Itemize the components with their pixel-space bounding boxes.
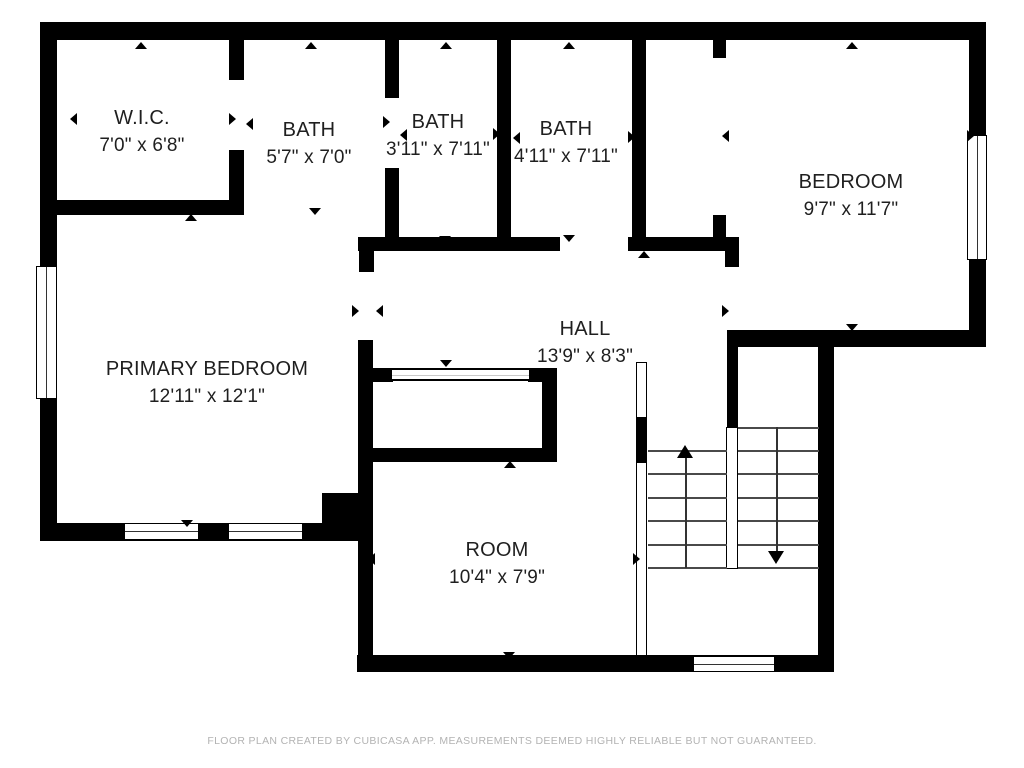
wall-wic-right-upper: [229, 22, 244, 80]
room-label-primary-bedroom: PRIMARY BEDROOM 12'11" x 12'1": [106, 356, 308, 410]
stairs-down-arrow: [776, 427, 778, 553]
wall-closet-top-left-stub: [359, 368, 393, 382]
room-dimensions: 4'11" x 7'11": [514, 143, 618, 170]
dim-marker-right: [722, 305, 729, 317]
dim-marker-right: [493, 128, 500, 140]
room-dimensions: 3'11" x 7'11": [386, 136, 490, 163]
wall-bedroom-left-upper: [713, 22, 726, 58]
stair-tread: [738, 544, 819, 546]
wall-hall-stairwell: [727, 340, 738, 428]
wall-bedroom-bottom: [727, 330, 986, 347]
room-label-bath1: BATH 5'7" x 7'0": [266, 117, 351, 171]
dim-marker-left: [47, 221, 54, 233]
room-label-wic: W.I.C. 7'0" x 6'8": [99, 105, 184, 159]
dim-marker-right: [352, 305, 359, 317]
stair-tread: [648, 544, 727, 546]
room-name: BATH: [386, 109, 490, 136]
room-name: BATH: [266, 117, 351, 144]
room-dimensions: 13'9" x 8'3": [537, 343, 633, 370]
room-name: ROOM: [449, 537, 545, 564]
dim-marker-up: [440, 42, 452, 49]
footer-disclaimer: FLOOR PLAN CREATED BY CUBICASA APP. MEAS…: [0, 735, 1024, 747]
dim-marker-left: [246, 118, 253, 130]
dim-marker-up: [638, 251, 650, 258]
dim-marker-down: [309, 208, 321, 215]
room-dimensions: 10'4" x 7'9": [449, 564, 545, 591]
wall-closet-bottom: [358, 448, 557, 462]
dim-marker-right: [628, 131, 635, 143]
stair-tread: [738, 427, 819, 429]
stair-tread: [738, 520, 819, 522]
room-name: BEDROOM: [799, 169, 904, 196]
dim-marker-right: [633, 553, 640, 565]
dim-marker-down: [439, 236, 451, 243]
wall-bath1-bath2-lower: [385, 168, 399, 238]
wall-exterior-top: [40, 22, 986, 40]
stair-tread: [738, 450, 819, 452]
stair-tread: [738, 567, 819, 569]
wall-hall-top-right-stub: [725, 237, 739, 267]
dim-marker-down: [135, 200, 147, 207]
dim-marker-down: [181, 520, 193, 527]
room-name: BATH: [514, 116, 618, 143]
dim-marker-up: [135, 42, 147, 49]
window-primary-bottom-2: [228, 523, 303, 540]
room-label-bath3: BATH 4'11" x 7'11": [514, 116, 618, 170]
dim-marker-left: [376, 305, 383, 317]
dim-marker-up: [185, 214, 197, 221]
room-label-bath2: BATH 3'11" x 7'11": [386, 109, 490, 163]
wall-bath1-bath2-upper: [385, 22, 399, 98]
stairs-down-arrow-head: [768, 551, 784, 564]
room-dimensions: 12'11" x 12'1": [106, 383, 308, 410]
room-dimensions: 7'0" x 6'8": [99, 132, 184, 159]
dim-marker-right: [967, 130, 974, 142]
dim-marker-right: [229, 113, 236, 125]
stairs-up-arrow: [685, 457, 687, 568]
window-bedroom-right: [967, 135, 987, 260]
room-dimensions: 5'7" x 7'0": [266, 144, 351, 171]
dim-marker-left: [722, 130, 729, 142]
floor-plan: W.I.C. 7'0" x 6'8" BATH 5'7" x 7'0" BATH…: [0, 0, 1024, 768]
wall-stair-west-segment: [636, 417, 647, 463]
dim-marker-left: [368, 553, 375, 565]
dim-marker-up: [846, 42, 858, 49]
dim-marker-up: [305, 42, 317, 49]
stair-tread: [648, 567, 727, 569]
stair-tread: [738, 473, 819, 475]
window-primary-left: [36, 266, 57, 399]
dim-marker-down: [563, 235, 575, 242]
dim-marker-up: [563, 42, 575, 49]
wall-hall-top-right: [628, 237, 739, 251]
wall-stairwell-right: [818, 347, 834, 672]
dim-marker-down: [503, 652, 515, 659]
closet-sliding-door: [392, 368, 529, 381]
door-hall-stairs: [636, 362, 647, 418]
window-stair-bottom: [693, 656, 775, 672]
room-label-bedroom: BEDROOM 9'7" x 11'7": [799, 169, 904, 223]
wall-primary-bottom: [40, 523, 366, 541]
room-label-hall: HALL 13'9" x 8'3": [537, 316, 633, 370]
dim-marker-left: [70, 113, 77, 125]
stairs-up-arrow-head: [677, 445, 693, 458]
stair-tread: [648, 497, 727, 499]
room-label-room: ROOM 10'4" x 7'9": [449, 537, 545, 591]
dim-marker-down: [440, 360, 452, 367]
stair-tread: [648, 520, 727, 522]
wall-hall-left-upper: [359, 237, 374, 272]
dim-marker-down: [846, 324, 858, 331]
wall-notch-block: [322, 493, 366, 540]
stair-center-railing: [726, 427, 738, 569]
stair-tread: [648, 473, 727, 475]
wall-bath3-right: [632, 22, 646, 238]
room-name: HALL: [537, 316, 633, 343]
room-name: W.I.C.: [99, 105, 184, 132]
room-dimensions: 9'7" x 11'7": [799, 196, 904, 223]
wall-hall-top-left: [358, 237, 560, 251]
dim-marker-up: [504, 461, 516, 468]
stair-tread: [738, 497, 819, 499]
room-name: PRIMARY BEDROOM: [106, 356, 308, 383]
